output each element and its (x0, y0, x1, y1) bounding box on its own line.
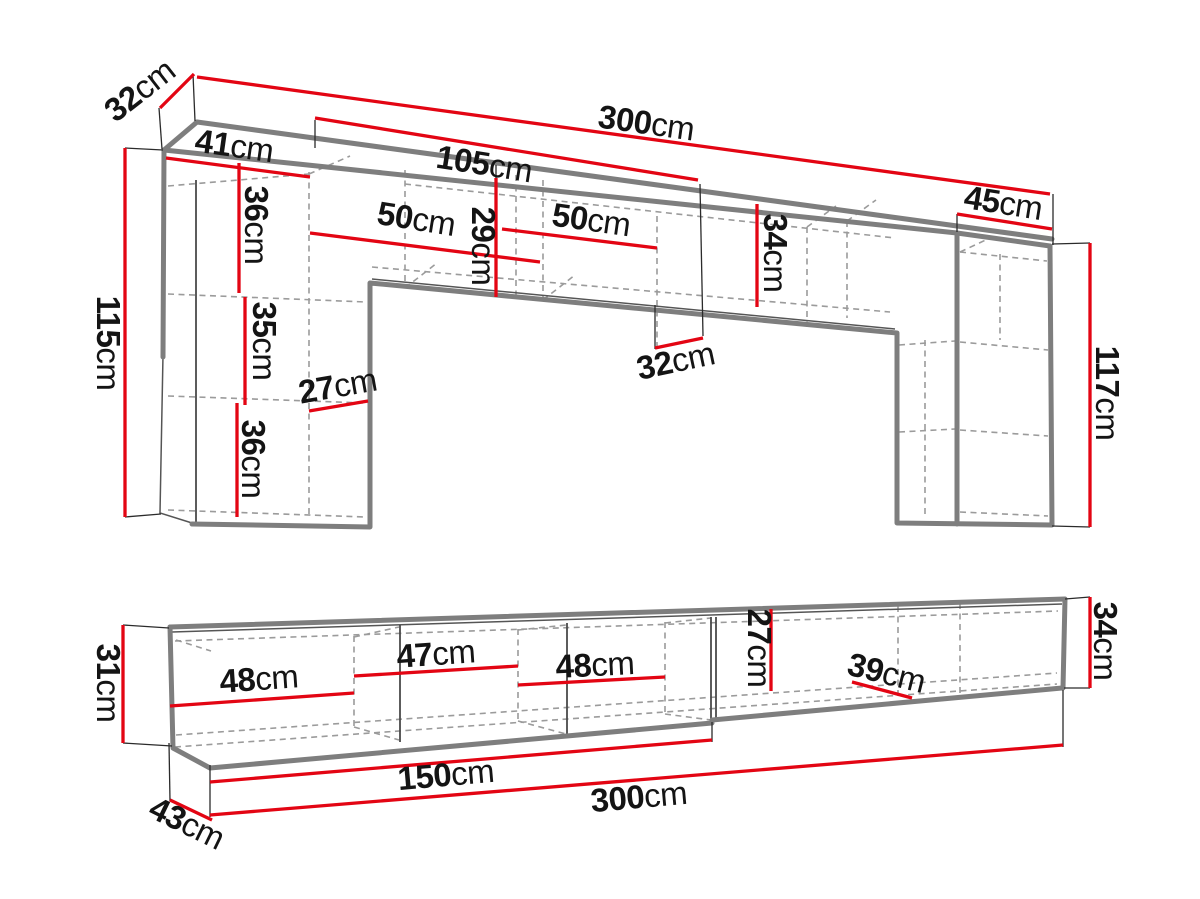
dim-label-36-upper: 36cm (238, 186, 275, 265)
furniture-dimension-diagram: 32cm 300cm 105cm 41cm 36cm 50cm 29cm 50c… (0, 0, 1200, 899)
dim-label-150: 150cm (396, 752, 495, 797)
dim-label-117: 117cm (1089, 346, 1126, 441)
dim-label-115: 115cm (90, 296, 127, 391)
dim-label-34-top: 34cm (757, 214, 794, 293)
dim-label-35: 35cm (246, 302, 283, 381)
dim-label-31: 31cm (90, 644, 127, 723)
dim-label-45: 45cm (962, 178, 1046, 227)
dim-label-48-second: 48cm (555, 644, 636, 685)
dim-label-300-top: 300cm (596, 97, 697, 147)
dim-label-29: 29cm (465, 207, 502, 286)
diagram-page: 32cm 300cm 105cm 41cm 36cm 50cm 29cm 50c… (0, 0, 1200, 899)
tv-stand-drawing (170, 599, 1065, 768)
dim-label-43: 43cm (144, 789, 231, 857)
wall-unit-drawing (160, 122, 1052, 527)
dim-label-48-first: 48cm (218, 657, 299, 699)
dim-label-36-lower: 36cm (235, 420, 272, 499)
dim-label-300-bottom: 300cm (589, 774, 688, 819)
dim-label-47: 47cm (395, 632, 476, 674)
dim-label-34-bottom: 34cm (1087, 602, 1124, 681)
dim-label-27-bottom: 27cm (741, 609, 778, 688)
dim-label-32-depth: 32cm (97, 51, 182, 129)
dim-label-32-mid: 32cm (633, 334, 718, 387)
wall-unit-body-fill (160, 122, 1052, 527)
